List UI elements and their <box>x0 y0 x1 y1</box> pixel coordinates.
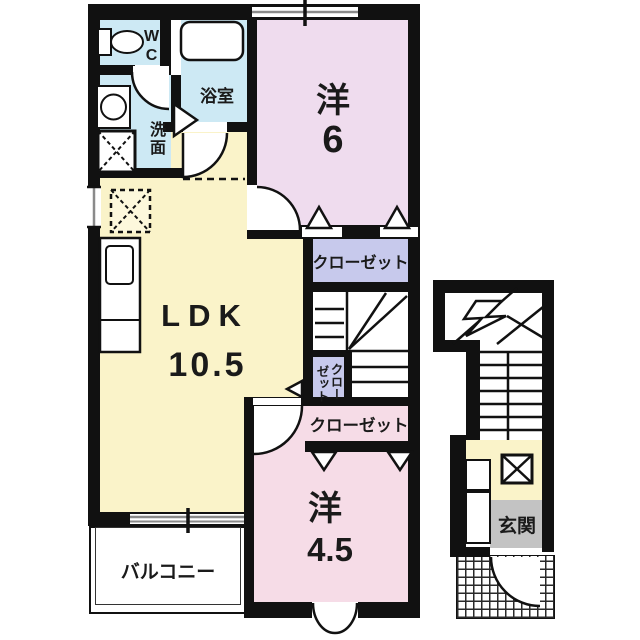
wall-wc-bath <box>160 4 171 75</box>
wall-stairs-left <box>303 292 313 406</box>
room45-kanji-label: 洋 <box>307 486 343 524</box>
wall-left <box>88 4 100 526</box>
wall-closet-top-bottom <box>303 282 420 292</box>
floor-plan: WC 浴室 洗面 洋 6 LDK 10.5 クローゼット クロー ゼット クロー… <box>0 0 640 640</box>
wall-stairblock-left-stub <box>433 340 469 352</box>
wall-closet-bottom <box>305 441 420 452</box>
wall-stairblock-flight-left <box>466 340 480 440</box>
doorway-room6 <box>247 185 257 230</box>
stairs-external <box>480 352 542 440</box>
wall-wash-bottom <box>88 168 183 178</box>
wall-stairblock-bottom <box>450 547 490 557</box>
stair-break-symbol <box>453 288 548 344</box>
ldk-label: LDK <box>150 298 260 334</box>
doorway-closet-top-b <box>380 227 418 237</box>
doorway-closet-top-a <box>302 227 342 237</box>
wall-wc-bottom <box>88 65 135 75</box>
bathroom-label: 浴室 <box>192 84 242 104</box>
wall-bottom-room45 <box>244 602 420 618</box>
doorway-room45 <box>253 398 301 405</box>
wall-stairblock-top <box>433 280 554 293</box>
wall-room45-left <box>244 397 254 618</box>
bathroom-floor <box>181 20 247 122</box>
washroom-label: 洗面 <box>145 110 165 168</box>
wall-right <box>408 4 420 618</box>
entrance-porch-tiles <box>456 555 555 619</box>
room6-size-label: 6 <box>317 118 349 162</box>
balcony-label: バルコニー <box>110 558 226 582</box>
wall-wash-bath <box>171 75 181 122</box>
room6-kanji-label: 洋 <box>315 78 351 116</box>
ldk-size-label: 10.5 <box>155 344 260 386</box>
entrance-label: 玄関 <box>494 512 540 536</box>
wall-stairblock-right <box>542 280 554 552</box>
wall-ldk-balcony <box>88 512 247 526</box>
room45-size-label: 4.5 <box>301 530 359 570</box>
closet-middle-label-left: ゼット <box>315 361 329 407</box>
closet-bottom-label: クローゼット <box>311 413 407 435</box>
wc-label: WC <box>141 25 161 69</box>
closet-top-label: クローゼット <box>314 251 407 271</box>
wall-bath-bottom-r <box>227 122 247 132</box>
wall-stairblock-left-lower <box>450 435 466 557</box>
stair-hall-floor <box>466 440 542 500</box>
